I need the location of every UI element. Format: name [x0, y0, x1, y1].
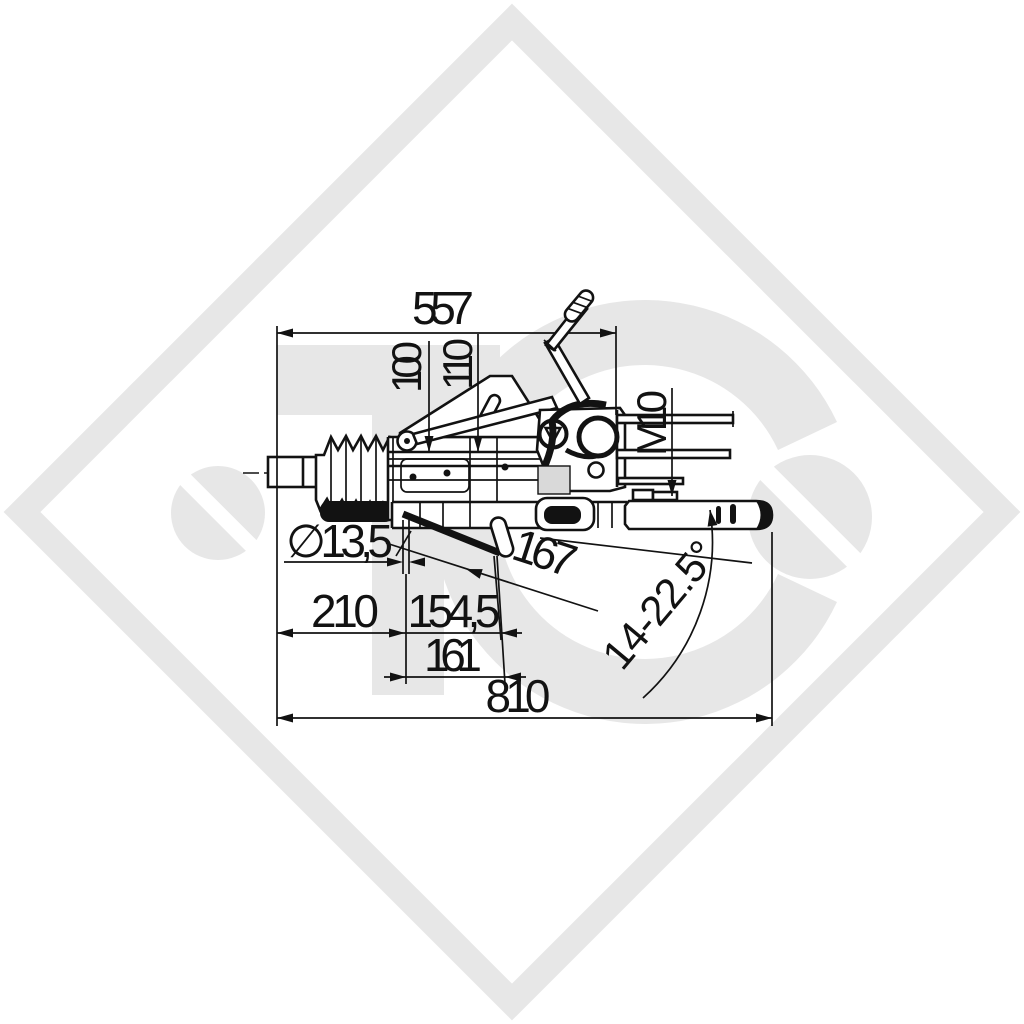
dim-label-810: 810	[486, 670, 551, 722]
dim-label-hole-diameter: ∅13,5	[286, 515, 393, 567]
dim-label-557: 557	[412, 282, 474, 334]
dim-hole-13-5: ∅13,5	[284, 515, 425, 574]
drawbar-shaft	[268, 457, 318, 487]
watermark-slashed-circle-left	[171, 466, 265, 560]
technical-drawing-canvas: 557 100 110 M10 ∅13,5	[0, 0, 1024, 1024]
dim-label-161: 161	[424, 629, 482, 681]
dim-label-110: 110	[434, 338, 481, 390]
coupling-head	[537, 403, 625, 494]
technical-drawing-page: 557 100 110 M10 ∅13,5	[0, 0, 1024, 1024]
dim-label-m10: M10	[628, 390, 675, 456]
drawbar-tube	[625, 501, 772, 529]
dim-label-210: 210	[311, 585, 379, 637]
dim-label-100: 100	[383, 341, 430, 393]
